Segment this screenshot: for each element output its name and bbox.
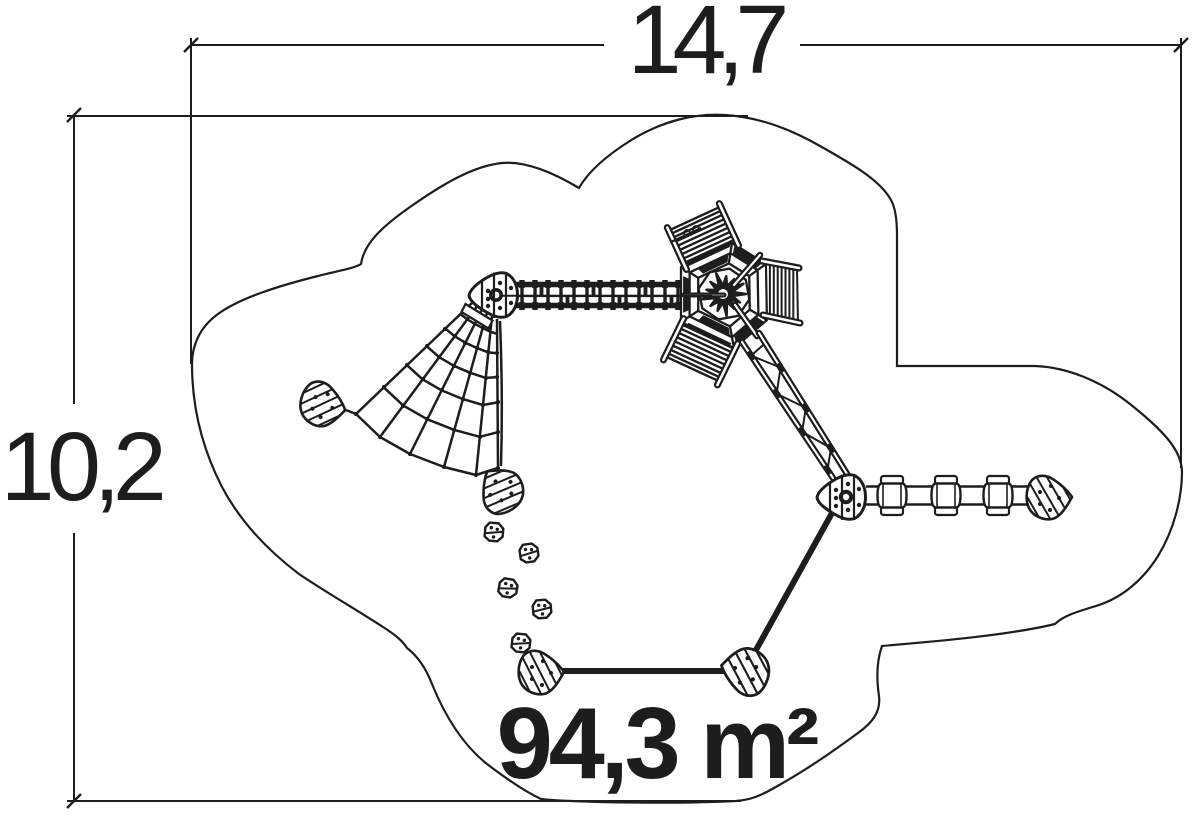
- svg-text:14,7: 14,7: [628, 0, 786, 94]
- svg-text:10,2: 10,2: [1, 412, 163, 521]
- svg-text:94,3 m²: 94,3 m²: [497, 688, 818, 800]
